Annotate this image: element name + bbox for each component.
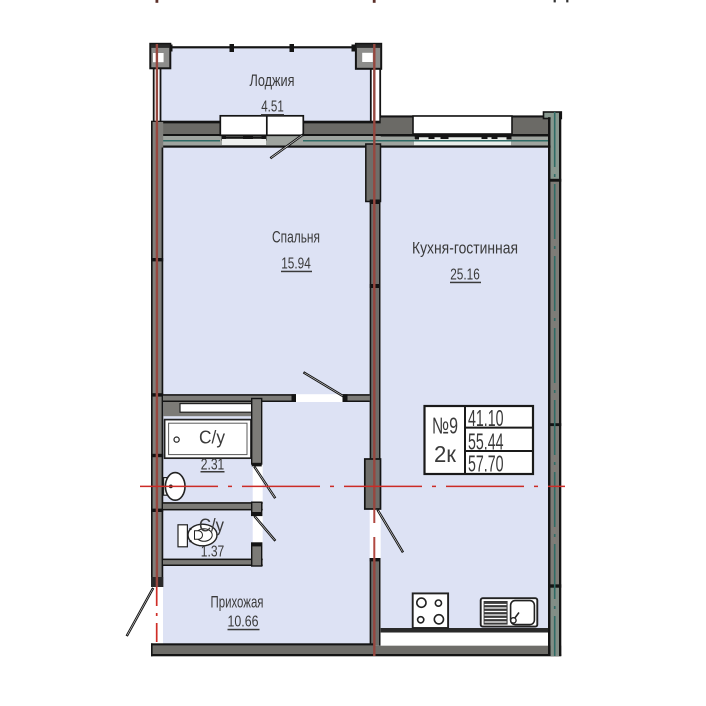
svg-text:10.66: 10.66 [228,614,259,631]
svg-text:Спальня: Спальня [272,229,320,247]
svg-text:2.31: 2.31 [201,457,225,474]
svg-text:25.16: 25.16 [450,267,480,284]
svg-text:С/у: С/у [199,427,226,448]
svg-text:57.70: 57.70 [468,450,504,476]
svg-text:Лоджия: Лоджия [250,72,295,90]
svg-text:№9: №9 [432,413,458,439]
svg-text:41.10: 41.10 [468,405,504,431]
svg-text:1.37: 1.37 [201,544,225,561]
svg-text:Кухня-гостинная: Кухня-гостинная [412,240,518,258]
svg-text:Прихожая: Прихожая [211,594,264,612]
svg-text:15.94: 15.94 [281,256,311,273]
svg-text:С/у: С/у [199,515,225,536]
svg-text:4.51: 4.51 [261,99,284,116]
svg-text:2к: 2к [434,441,457,467]
